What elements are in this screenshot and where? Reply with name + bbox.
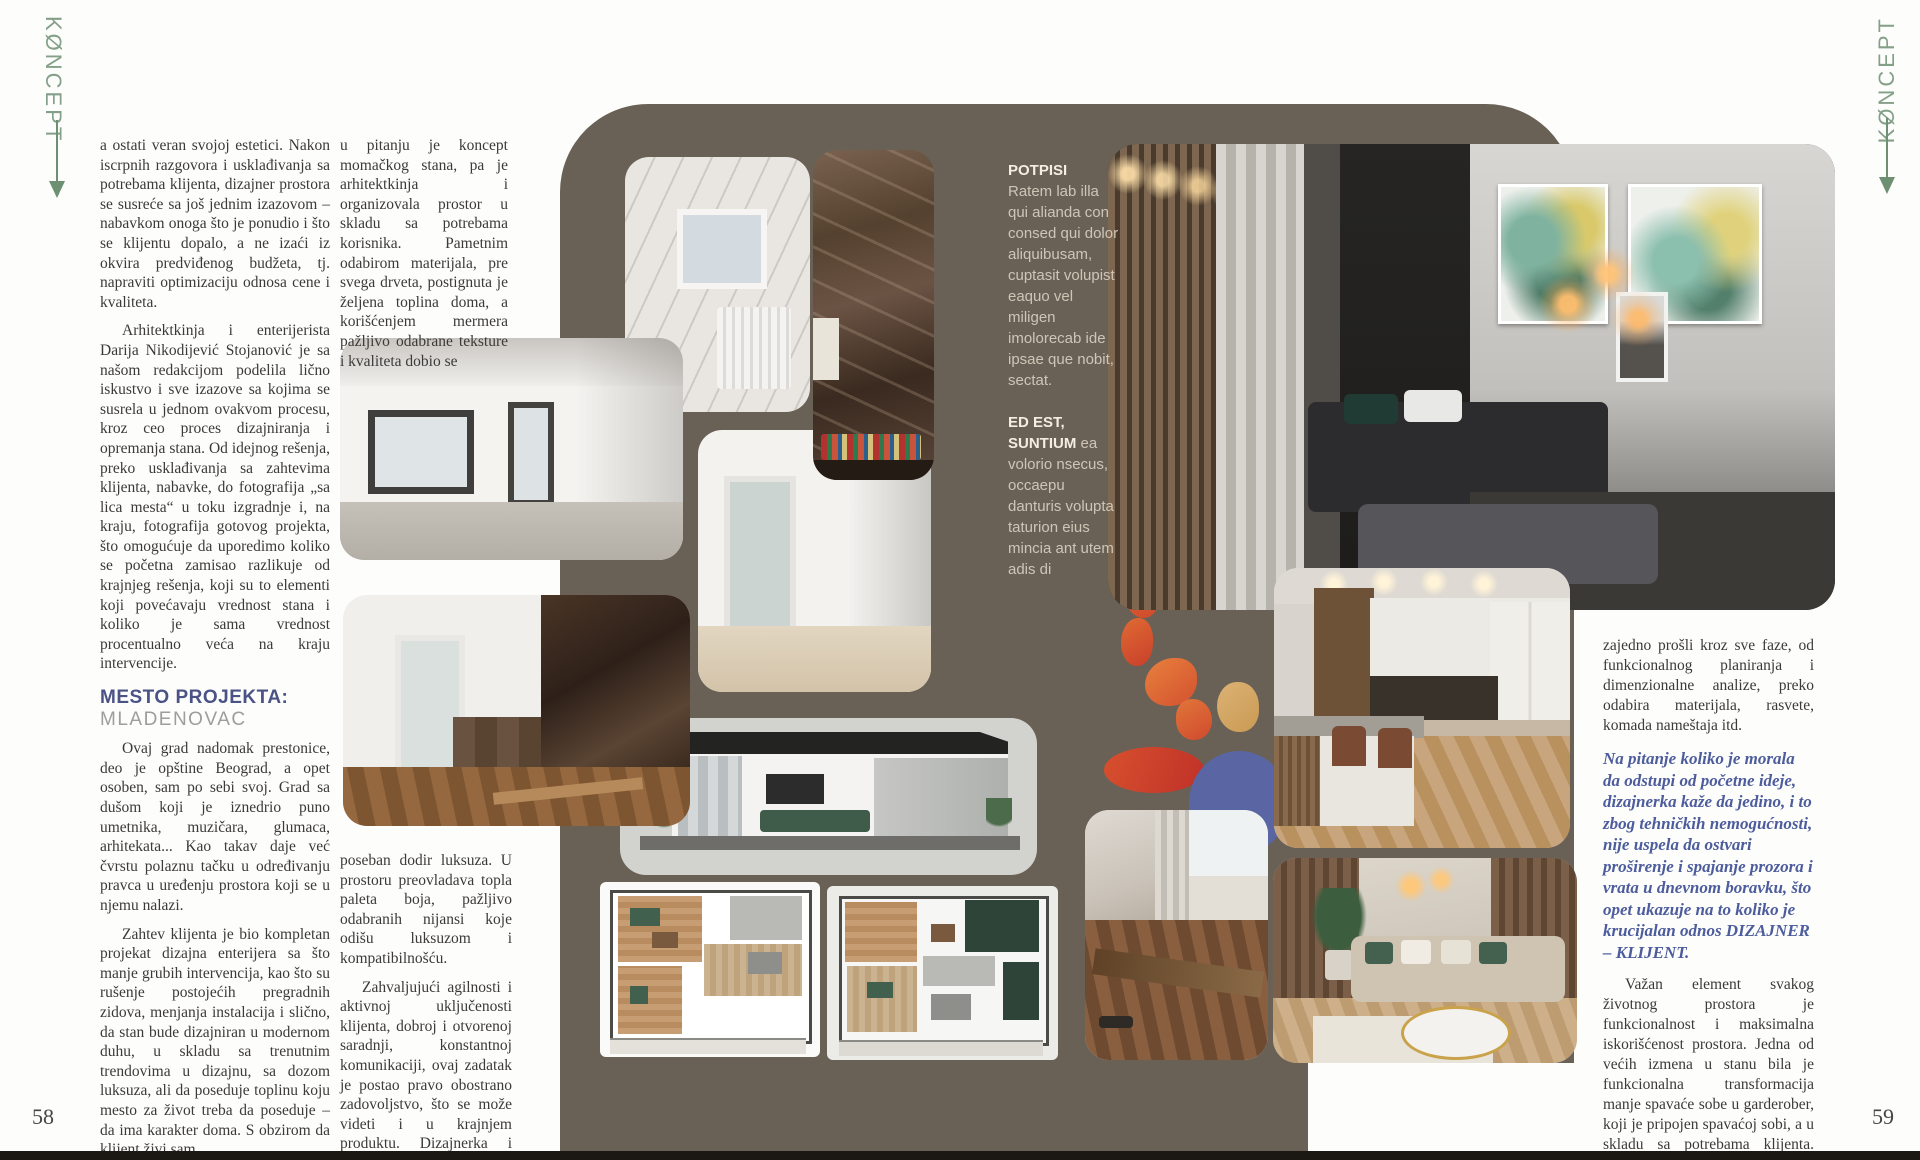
shelf: [813, 460, 934, 480]
section-floor-slab: [640, 836, 1020, 850]
plan-room-wood: [847, 966, 917, 1032]
plan-balcony: [610, 1038, 806, 1054]
page-number-right: 59: [1872, 1104, 1894, 1130]
plan-sofa: [867, 982, 893, 998]
window: [368, 410, 474, 494]
shoes: [1099, 1016, 1133, 1028]
body-paragraph: Važan element svakog životnog prostora j…: [1603, 975, 1814, 1160]
tv: [766, 774, 824, 804]
marble-feature-wall: [541, 595, 690, 785]
pillow: [1401, 940, 1431, 964]
island-wood-slats: [1274, 736, 1320, 826]
plan-balcony: [839, 1040, 1043, 1056]
photo-captions-block: POTPISI Ratem lab illa qui alianda con c…: [1008, 160, 1122, 601]
plan-room-wood: [618, 966, 682, 1034]
body-paragraph: Arhitektkinja i enterijerista Darija Nik…: [100, 321, 330, 674]
magazine-logo-vertical-left: KØNCEPT: [40, 16, 66, 143]
body-paragraph: u pitanju je koncept momačkog stana, pa …: [340, 136, 508, 371]
plan-chair: [630, 986, 648, 1004]
pillow: [1479, 942, 1507, 964]
plan-bed: [748, 952, 782, 974]
left-page-column-1: a ostati veran svojoj estetici. Nakon is…: [100, 136, 330, 1160]
decorative-pebble-blob: [1176, 699, 1212, 740]
screed-floor: [340, 502, 683, 560]
window: [813, 318, 839, 380]
window: [508, 402, 554, 506]
body-paragraph: a ostati veran svojoj estetici. Nakon is…: [100, 136, 330, 312]
round-coffee-table: [1401, 1006, 1511, 1060]
radiator: [717, 307, 791, 389]
pull-quote: Na pitanje koliko je morala da odstupi o…: [1603, 748, 1814, 963]
balcony-door: [724, 476, 796, 634]
pendant-bulbs: [1538, 244, 1668, 354]
plan-table: [931, 924, 955, 942]
floor: [698, 626, 931, 692]
decorative-pebble-blob: [1104, 747, 1204, 793]
body-paragraph: zajedno prošli kroz sve faze, od funkcio…: [1603, 636, 1814, 736]
down-arrow-icon: [56, 120, 58, 182]
right-page-column: zajedno prošli kroz sve faze, od funkcio…: [1603, 636, 1814, 1160]
render-floor-plan-top-view-1: [600, 882, 820, 1057]
body-paragraph: poseban dodir luksuza. U prostoru preovl…: [340, 851, 512, 969]
plan-room-dark: [1003, 962, 1039, 1020]
decorative-pebble-blob: [1121, 618, 1153, 666]
pillow: [1441, 940, 1471, 964]
render-floor-plan-top-view-2: [827, 886, 1058, 1060]
plan-bed: [931, 994, 971, 1020]
left-page-column-2-top: u pitanju je koncept momačkog stana, pa …: [340, 136, 508, 380]
photo-construction-wood-slab: [1085, 810, 1268, 1060]
location-value: MLADENOVAC: [100, 710, 330, 730]
pillow: [1365, 942, 1393, 964]
wood-cabinet: [1314, 588, 1374, 718]
plant: [986, 798, 1012, 832]
caption-body: Ratem lab illa qui alianda con consed qu…: [1008, 183, 1118, 389]
curtain: [1155, 810, 1189, 930]
location-heading: MESTO PROJEKTA:: [100, 688, 330, 708]
decorative-pebble-blob-tan: [1217, 682, 1259, 732]
caption-title: POTPISI: [1008, 162, 1067, 179]
plan-room-wood: [845, 902, 917, 962]
photo-bedroom-hero: [1108, 144, 1835, 610]
caption-paragraph: ED EST, SUNTIUM ea volorio nsecus, occae…: [1008, 412, 1122, 580]
bar-chair: [1378, 728, 1412, 768]
down-arrow-icon: [49, 181, 65, 198]
body-paragraph: Ovaj grad nadomak prestonice, deo je opš…: [100, 739, 330, 915]
pillow: [1344, 394, 1398, 424]
sheer-curtain: [1216, 144, 1316, 610]
pendant-bulbs: [1393, 864, 1463, 904]
plan-room-gray: [923, 956, 995, 986]
page-number-left: 58: [32, 1104, 54, 1130]
page-bottom-edge: [0, 1151, 1920, 1160]
bar-chair: [1332, 726, 1366, 766]
plan-sofa: [630, 908, 660, 926]
plan-room-dark: [965, 900, 1039, 952]
pillow: [1404, 390, 1462, 422]
window: [677, 209, 767, 289]
plan-table: [652, 932, 678, 948]
wall-shadow: [576, 338, 683, 508]
green-sofa: [760, 810, 870, 832]
body-paragraph: Zahtev klijenta je bio kompletan projeka…: [100, 925, 330, 1160]
plan-room-gray: [730, 896, 802, 940]
photo-living-room-render: [1273, 858, 1577, 1063]
down-arrow-icon: [1886, 118, 1888, 178]
photo-bathroom-dark-marble: [813, 150, 934, 480]
caption-paragraph: POTPISI Ratem lab illa qui alianda con c…: [1008, 160, 1122, 391]
toiletry-bottles: [821, 434, 921, 460]
plan-room-wood: [618, 896, 702, 962]
photo-kitchen-render: [1274, 568, 1570, 848]
magazine-spread: KØNCEPT KØNCEPT a ostati veran svojoj es…: [0, 0, 1920, 1160]
caption-body: ea volorio nsecus, occaepu danturis volu…: [1008, 435, 1114, 578]
dark-curtain: [1304, 144, 1340, 610]
down-arrow-icon: [1879, 177, 1895, 194]
section-roof: [656, 732, 1008, 756]
window: [1189, 810, 1268, 876]
planter: [1325, 950, 1353, 980]
caption-title: ED EST, SUNTIUM: [1008, 414, 1076, 452]
marble-texture: [813, 150, 934, 480]
left-page-column-2-bottom: poseban dodir luksuza. U prostoru preovl…: [340, 851, 512, 1160]
body-paragraph: Zahvaljujući agilnosti i aktivnoj uključ…: [340, 978, 512, 1160]
photo-room-dark-marble-wall: [343, 595, 690, 826]
